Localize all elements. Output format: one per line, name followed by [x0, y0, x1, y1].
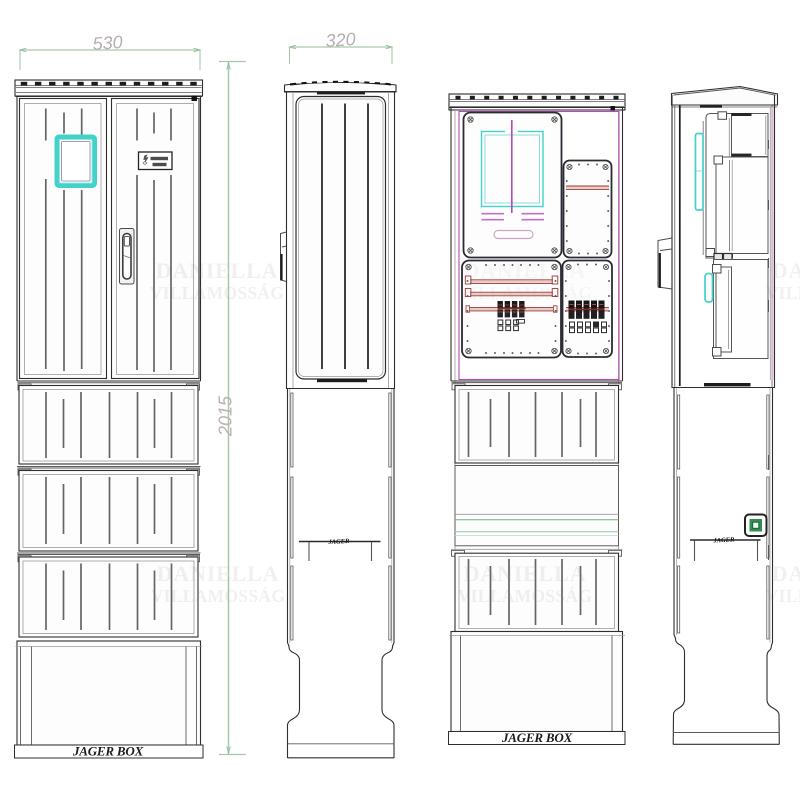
svg-text:VILLAMOSSÁG: VILLAMOSSÁG [151, 586, 286, 606]
svg-text:DANIELLA: DANIELLA [772, 561, 800, 586]
svg-text:JAGER BOX: JAGER BOX [72, 744, 144, 759]
svg-text:VILLAMOSSÁG: VILLAMOSSÁG [150, 283, 285, 303]
svg-text:VILLAMOSSÁG: VILLAMOSSÁG [766, 283, 800, 303]
svg-text:JAGER: JAGER [327, 538, 350, 546]
svg-text:VILLAMOSSÁG: VILLAMOSSÁG [766, 586, 800, 606]
svg-text:320: 320 [325, 29, 356, 51]
svg-text:2015: 2015 [216, 395, 236, 437]
svg-text:DANIELLA: DANIELLA [772, 258, 800, 283]
svg-text:DANIELLA: DANIELLA [464, 561, 587, 586]
svg-text:VILLAMOSSÁG: VILLAMOSSÁG [458, 586, 593, 606]
svg-text:530: 530 [92, 32, 123, 54]
svg-text:DANIELLA: DANIELLA [156, 258, 279, 283]
svg-text:DANIELLA: DANIELLA [464, 258, 587, 283]
svg-text:DANIELLA: DANIELLA [157, 561, 280, 586]
svg-text:JAGER: JAGER [712, 536, 735, 544]
svg-text:VILLAMOSSÁG: VILLAMOSSÁG [458, 283, 593, 303]
svg-text:JAGER BOX: JAGER BOX [501, 730, 573, 745]
